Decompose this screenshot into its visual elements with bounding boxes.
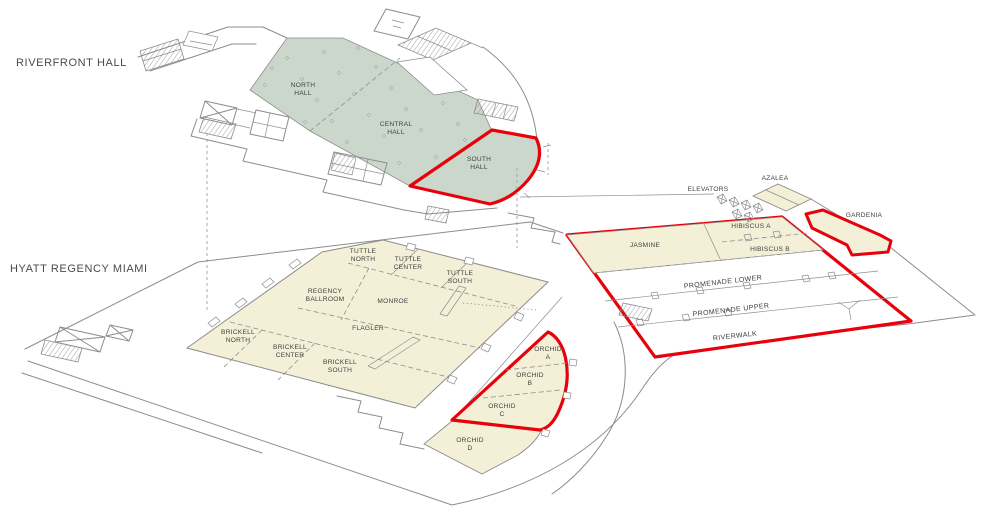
room-label-tuttle-north: TUTTLENORTH [350, 248, 377, 263]
room-label-hibiscus-b: HIBISCUS B [750, 246, 790, 253]
room-label-gardenia: GARDENIA [846, 212, 883, 219]
room-label-brickell-center: BRICKELLCENTER [273, 344, 307, 359]
room-label-south-hall: SOUTHHALL [467, 156, 491, 171]
hyatt-title: HYATT REGENCY MIAMI [10, 263, 148, 275]
escalator-hatch [398, 28, 471, 60]
room-label-brickell-north: BRICKELLNORTH [221, 329, 255, 344]
room-label-hibiscus-a: HIBISCUS A [731, 223, 771, 230]
stair-room [183, 31, 218, 51]
room-label-tuttle-south: TUTTLESOUTH [447, 270, 474, 285]
room-label-elevators: ELEVATORS [688, 186, 729, 193]
room-label-jasmine: JASMINE [630, 242, 661, 249]
room-label-regency-ballroom: REGENCYBALLROOM [306, 288, 345, 303]
hyatt-plan: HYATT REGENCY MIAMI TUTTLENORTH TUTTLECE… [10, 175, 975, 505]
room-label-flagler: FLAGLER [352, 325, 384, 332]
room-label-monroe: MONROE [377, 298, 409, 305]
room-label-tuttle-center: TUTTLECENTER [394, 256, 423, 271]
room-label-azalea: AZALEA [762, 175, 789, 182]
room-label-north-hall: NORTHHALL [291, 82, 316, 97]
room-label-brickell-south: BRICKELLSOUTH [323, 359, 357, 374]
floor-plan-page: RIVERFRONT HALL NORTHHALL CENTRALHALL SO… [0, 0, 1000, 510]
floor-plan-svg: RIVERFRONT HALL NORTHHALL CENTRALHALL SO… [0, 0, 1000, 510]
riverfront-title: RIVERFRONT HALL [16, 57, 127, 69]
